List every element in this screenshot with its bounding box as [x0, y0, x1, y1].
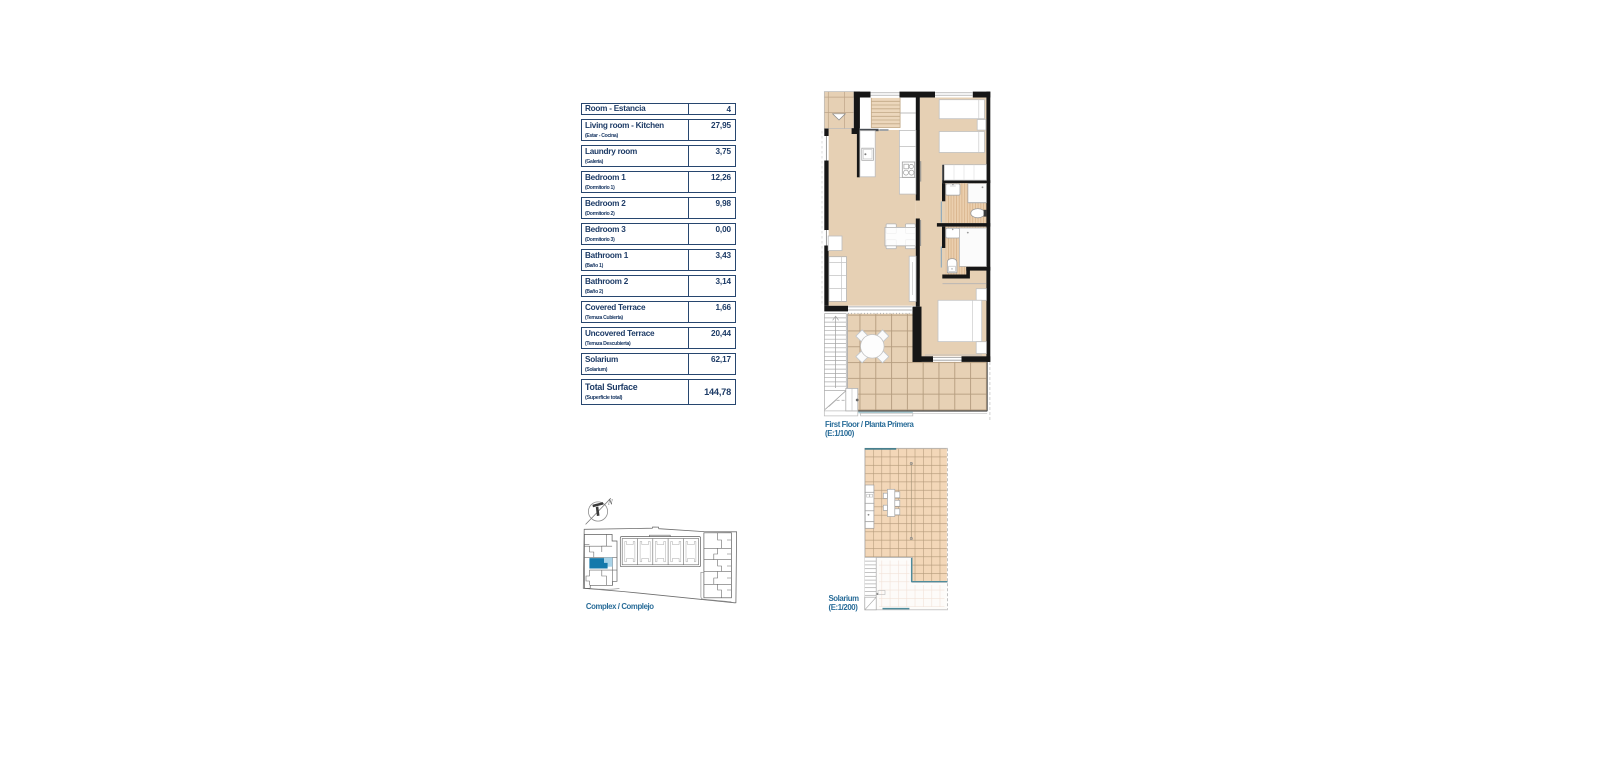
svg-text:N: N: [607, 499, 613, 507]
